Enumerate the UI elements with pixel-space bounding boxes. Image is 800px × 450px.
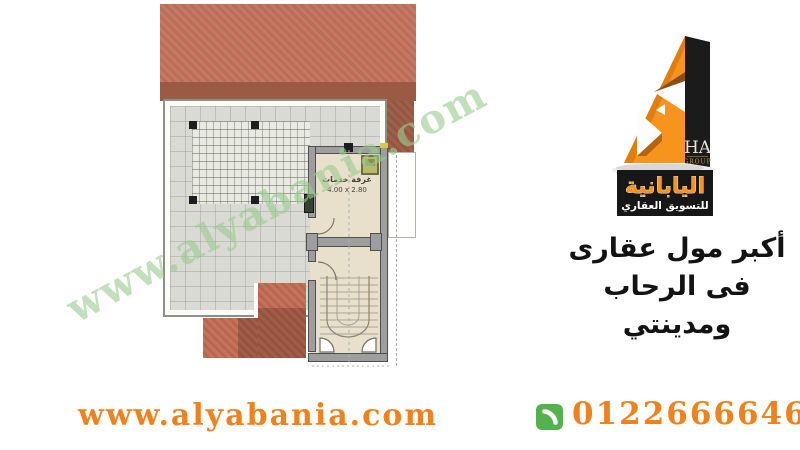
- corner-quadrant-right: [362, 338, 376, 352]
- brand-logo: HA GROUP اليابانية للتسويق العقاري: [612, 20, 717, 218]
- stair-handrail-inner: [337, 276, 359, 325]
- logo-monogram: HA: [684, 138, 712, 158]
- advertisement-canvas: غرفة خدمات 4.00 x 2.80 www.alyabania.com…: [0, 0, 800, 450]
- brand-tagline-arabic: للتسويق العقاري: [621, 200, 709, 212]
- logo-monogram-sub: GROUP: [683, 159, 711, 166]
- headline-line-2: فى الرحاب ومدينتي: [558, 268, 796, 344]
- brand-name-arabic: اليابانية: [625, 174, 705, 199]
- phone-handset-icon: [536, 404, 563, 430]
- phone-icon: [536, 404, 563, 430]
- footer-website: www.alyabania.com: [78, 398, 438, 433]
- door-arc-upper: [318, 218, 334, 234]
- headline-line-1: أكبر مول عقارى: [558, 230, 796, 268]
- footer-phone: 01226666466: [572, 396, 800, 432]
- headline-block: أكبر مول عقارى فى الرحاب ومدينتي: [558, 230, 796, 344]
- corner-quadrant-left: [320, 338, 334, 352]
